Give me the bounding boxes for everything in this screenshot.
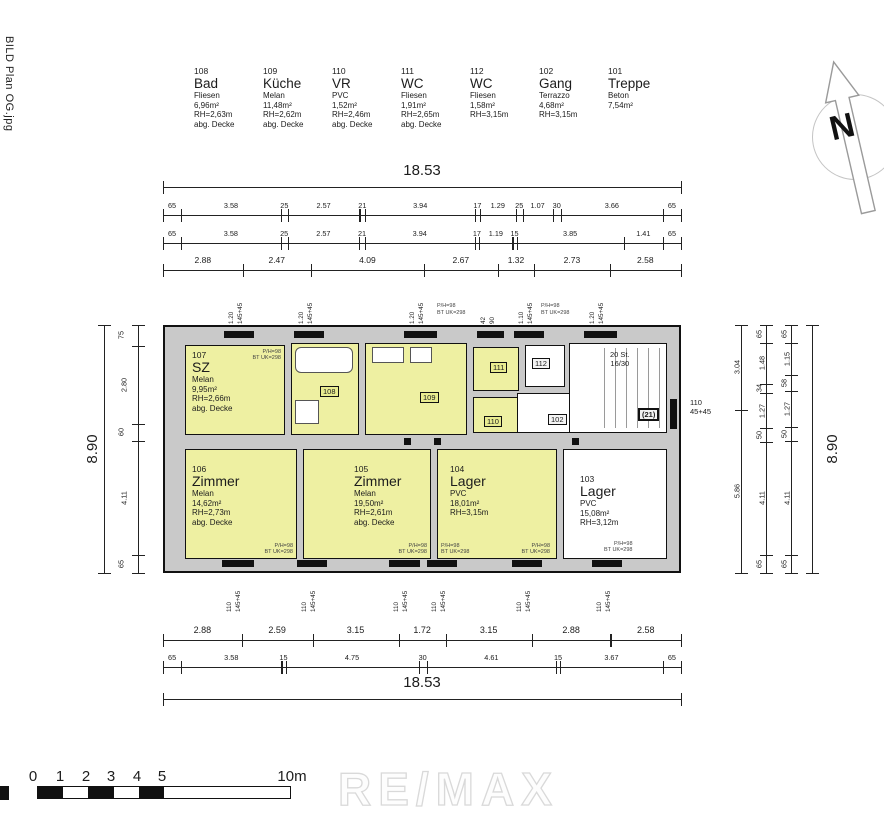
room-108-bad: 108	[291, 343, 359, 435]
room-101-treppe: 20 St. 16/30 (21)	[569, 343, 667, 433]
parapet-note: P/H=98BT UK=298	[437, 303, 466, 316]
stair-door-tag: (21)	[638, 408, 659, 421]
kitchen-sink	[410, 347, 432, 363]
window	[389, 560, 420, 567]
scale-tick-0: 0	[29, 768, 37, 785]
scale-tick-5: 5	[158, 768, 166, 785]
room-note: abg. Decke	[192, 518, 239, 528]
window-label: 110145+45	[596, 578, 613, 612]
floor-plan: 107 SZ Melan 9,95m² RH=2,66m abg. Decke …	[163, 325, 681, 573]
dim-top-row2: 653.58252.57213.94171.19153.851.4165	[163, 226, 681, 252]
dim-left-overall: 8.90	[80, 325, 110, 573]
legend-room-floor: Beton	[608, 91, 671, 101]
legend-room-height: RH=2,62m	[263, 110, 326, 120]
scale-tick-10m: 10m	[277, 768, 306, 785]
door-marker	[434, 438, 441, 445]
dim-bottom-overall: 18.53	[163, 672, 681, 706]
window	[224, 331, 254, 338]
legend-room-note: abg. Decke	[194, 120, 257, 130]
parapet-note: BT UK=298	[522, 549, 551, 555]
legend-room-height: RH=2,65m	[401, 110, 464, 120]
window-label: 4290	[480, 296, 497, 324]
room-floor: Melan	[354, 489, 401, 499]
parapet-note: BT UK=298	[441, 549, 470, 555]
legend-room: 101 Treppe Beton 7,54m²	[608, 66, 671, 129]
scale-tick-1: 1	[56, 768, 64, 785]
room-107-sz: 107 SZ Melan 9,95m² RH=2,66m abg. Decke …	[185, 345, 285, 435]
legend-room: 110 VR PVC 1,52m² RH=2,46m abg. Decke	[332, 66, 395, 129]
window	[477, 331, 504, 338]
legend-room-name: Bad	[194, 76, 257, 91]
legend-room: 111 WC Fliesen 1,91m² RH=2,65m abg. Deck…	[401, 66, 464, 129]
dim-top-overall: 18.53	[163, 160, 681, 194]
room-legend: 108 Bad Fliesen 6,96m² RH=2,63m abg. Dec…	[194, 66, 671, 129]
legend-room-height: RH=2,46m	[332, 110, 395, 120]
legend-room-note: abg. Decke	[401, 120, 464, 130]
parapet-note: BT UK=298	[604, 547, 633, 553]
room-floor: Melan	[192, 489, 239, 499]
legend-room: 102 Gang Terrazzo 4,68m² RH=3,15m	[539, 66, 602, 129]
window	[670, 399, 677, 429]
window-label: 1.20145+45	[298, 292, 315, 324]
window	[297, 560, 327, 567]
kitchen-counter	[372, 347, 404, 363]
room-tag-109: 109	[420, 392, 439, 403]
legend-room-number: 112	[470, 66, 533, 76]
window	[584, 331, 617, 338]
room-104-lager: 104 Lager PVC 18,01m² RH=3,15m P/H=98BT …	[437, 449, 557, 559]
legend-room-area: 11,48m²	[263, 101, 326, 111]
room-area: 9,95m²	[192, 385, 232, 395]
room-floor: PVC	[450, 489, 488, 499]
room-name: Lager	[450, 474, 488, 489]
legend-room-area: 1,52m²	[332, 101, 395, 111]
window-label-right: 11045+45	[690, 398, 711, 416]
room-103-lager: 103 Lager PVC 15,08m² RH=3,12m P/H=98BT …	[563, 449, 667, 559]
legend-room-name: Küche	[263, 76, 326, 91]
window-label: 1.20145+45	[228, 292, 245, 324]
parapet-note: BT UK=298	[399, 549, 428, 555]
room-area: 19,50m²	[354, 499, 401, 509]
legend-room-name: Gang	[539, 76, 602, 91]
room-tag-110: 110	[484, 416, 502, 427]
room-tag-102: 102	[548, 414, 567, 425]
room-area: 15,08m²	[580, 509, 618, 519]
legend-room-floor: Terrazzo	[539, 91, 602, 101]
scale-tick-4: 4	[133, 768, 141, 785]
room-name: Zimmer	[354, 474, 401, 489]
file-name-label: BILD Plan OG.jpg	[3, 36, 15, 131]
window-label: 110145+45	[431, 578, 448, 612]
window-label: 1.20145+45	[589, 292, 606, 324]
room-110-vr: 110	[473, 397, 519, 433]
stair-steps-note: 20 St.	[610, 350, 630, 359]
room-height: RH=2,66m	[192, 394, 232, 404]
legend-room-number: 109	[263, 66, 326, 76]
scale-tick-3: 3	[107, 768, 115, 785]
room-106-zimmer: 106 Zimmer Melan 14,62m² RH=2,73m abg. D…	[185, 449, 297, 559]
legend-room-number: 108	[194, 66, 257, 76]
dim-bottom-row1: 2.882.593.151.723.152.882.58	[163, 622, 681, 648]
legend-room-area: 1,58m²	[470, 101, 533, 111]
legend-room: 109 Küche Melan 11,48m² RH=2,62m abg. De…	[263, 66, 326, 129]
window	[514, 331, 544, 338]
legend-room-floor: Fliesen	[194, 91, 257, 101]
dim-right-chain2: 651.48341.27504.1165	[758, 325, 784, 573]
dim-right-overall: 8.90	[806, 325, 840, 573]
legend-room-note: abg. Decke	[263, 120, 326, 130]
legend-room-area: 7,54m²	[608, 101, 671, 111]
parapet-note: BT UK=298	[253, 355, 282, 361]
room-floor: Melan	[192, 375, 232, 385]
stair-riser-note: 16/30	[610, 359, 629, 368]
room-name: Zimmer	[192, 474, 239, 489]
legend-room-number: 111	[401, 66, 464, 76]
bathtub	[295, 347, 353, 373]
remax-watermark: RE/MAX	[338, 762, 559, 816]
window	[427, 560, 457, 567]
legend-room-floor: Fliesen	[401, 91, 464, 101]
legend-room-floor: PVC	[332, 91, 395, 101]
dim-top-row1: 653.58252.57213.94171.29251.07303.6665	[163, 198, 681, 224]
parapet-note: P/H=98BT UK=298	[541, 303, 570, 316]
legend-room-name: WC	[401, 76, 464, 91]
room-height: RH=3,15m	[450, 508, 488, 518]
window-label: 110145+45	[226, 578, 243, 612]
room-floor: PVC	[580, 499, 618, 509]
room-105-zimmer: 105 Zimmer Melan 19,50m² RH=2,61m abg. D…	[303, 449, 431, 559]
dim-right-chain1: 3.045.86	[733, 325, 759, 573]
scale-bar	[37, 786, 291, 799]
room-tag-108: 108	[320, 386, 339, 397]
legend-room-area: 6,96m²	[194, 101, 257, 111]
window	[512, 560, 542, 567]
legend-room-floor: Melan	[263, 91, 326, 101]
room-area: 14,62m²	[192, 499, 239, 509]
legend-room-height: RH=2,63m	[194, 110, 257, 120]
window	[592, 560, 622, 567]
room-height: RH=2,61m	[354, 508, 401, 518]
legend-room: 112 WC Fliesen 1,58m² RH=3,15m	[470, 66, 533, 129]
window-label: 110145+45	[516, 578, 533, 612]
parapet-note: BT UK=298	[265, 549, 294, 555]
window-label: 110145+45	[301, 578, 318, 612]
legend-room-name: WC	[470, 76, 533, 91]
door-marker	[572, 438, 579, 445]
room-height: RH=2,73m	[192, 508, 239, 518]
room-name: SZ	[192, 360, 232, 375]
shower	[295, 400, 319, 424]
legend-room-number: 110	[332, 66, 395, 76]
window-label: 1.20145+45	[409, 292, 426, 324]
legend-room-height: RH=3,15m	[539, 110, 602, 120]
room-name: Lager	[580, 484, 618, 499]
legend-room-area: 4,68m²	[539, 101, 602, 111]
legend-room-number: 101	[608, 66, 671, 76]
north-arrow: N	[796, 52, 884, 222]
legend-room-floor: Fliesen	[470, 91, 533, 101]
legend-room-area: 1,91m²	[401, 101, 464, 111]
room-109-kueche: 109	[365, 343, 467, 435]
room-height: RH=3,12m	[580, 518, 618, 528]
window	[294, 331, 324, 338]
room-note: abg. Decke	[192, 404, 232, 414]
legend-room: 108 Bad Fliesen 6,96m² RH=2,63m abg. Dec…	[194, 66, 257, 129]
legend-room-number: 102	[539, 66, 602, 76]
legend-room-name: VR	[332, 76, 395, 91]
legend-room-name: Treppe	[608, 76, 671, 91]
room-area: 18,01m²	[450, 499, 488, 509]
door-marker	[404, 438, 411, 445]
room-tag-112: 112	[532, 358, 550, 369]
dim-left-chain: 752.80604.1165	[120, 325, 146, 573]
legend-room-height: RH=3,15m	[470, 110, 533, 120]
window	[404, 331, 437, 338]
scale-bar-stub	[0, 786, 9, 800]
window-label: 1.10145+45	[518, 292, 535, 324]
room-112-wc: 112	[525, 345, 565, 387]
room-tag-111: 111	[490, 362, 507, 373]
dim-top-row3: 2.882.474.092.671.322.732.58	[163, 252, 681, 278]
window-label: 110145+45	[393, 578, 410, 612]
scale-tick-2: 2	[82, 768, 90, 785]
window	[222, 560, 254, 567]
room-111-wc: 111	[473, 347, 519, 391]
room-note: abg. Decke	[354, 518, 401, 528]
legend-room-note: abg. Decke	[332, 120, 395, 130]
